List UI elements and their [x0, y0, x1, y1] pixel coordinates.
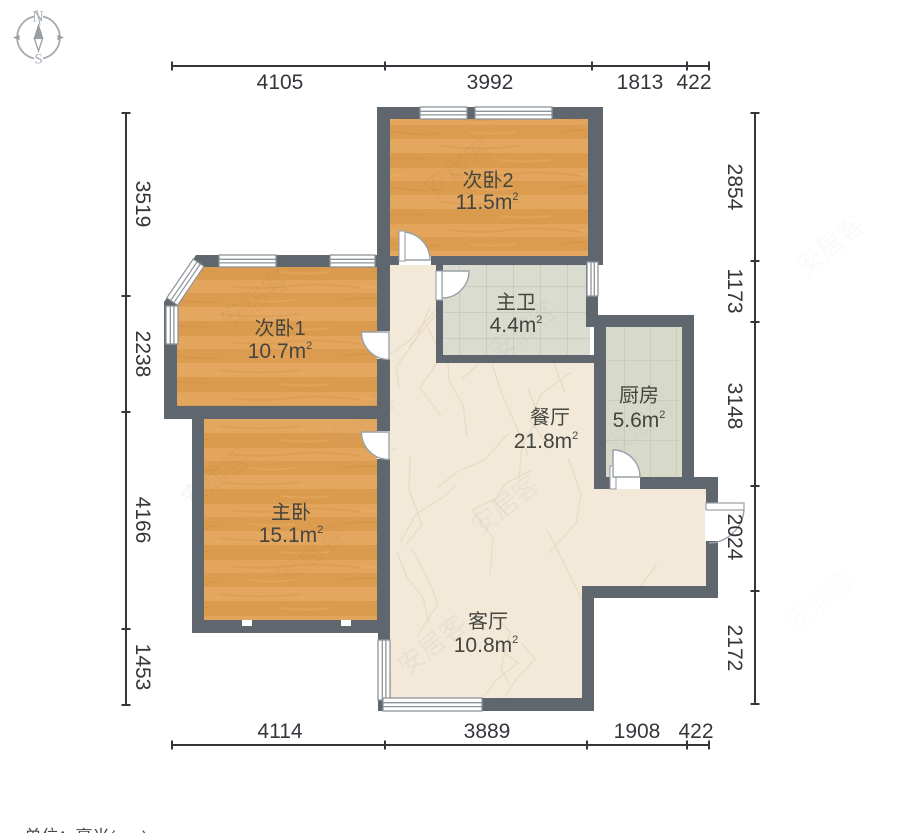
- svg-text:4114: 4114: [257, 720, 302, 743]
- svg-text:3519: 3519: [131, 181, 154, 228]
- svg-text:N: N: [32, 9, 44, 26]
- svg-text:2238: 2238: [131, 331, 154, 378]
- svg-text:3889: 3889: [464, 720, 511, 743]
- svg-text:2: 2: [502, 170, 513, 192]
- svg-text:15.1m2: 15.1m2: [259, 524, 324, 547]
- svg-text:422: 422: [678, 720, 713, 743]
- svg-text:11.5m2: 11.5m2: [456, 191, 519, 214]
- svg-text:21.8m2: 21.8m2: [514, 430, 579, 453]
- svg-text:2172: 2172: [723, 625, 746, 672]
- svg-text:5.6m2: 5.6m2: [613, 409, 666, 432]
- svg-text:4.4m2: 4.4m2: [490, 314, 543, 337]
- svg-text:1173: 1173: [723, 268, 746, 313]
- svg-text:10.8m2: 10.8m2: [454, 634, 519, 657]
- svg-text:4166: 4166: [131, 497, 154, 544]
- svg-text:1: 1: [294, 318, 305, 340]
- svg-text:4105: 4105: [257, 71, 304, 94]
- svg-text:3992: 3992: [467, 71, 514, 94]
- svg-text:1908: 1908: [614, 720, 661, 743]
- svg-text:422: 422: [676, 71, 711, 94]
- svg-text:2024: 2024: [723, 514, 746, 561]
- svg-text:2854: 2854: [723, 164, 746, 211]
- svg-text:S: S: [34, 52, 42, 68]
- svg-text:1813: 1813: [617, 71, 664, 94]
- svg-text:10.7m2: 10.7m2: [248, 340, 313, 363]
- svg-text:3148: 3148: [723, 383, 746, 430]
- svg-text:1453: 1453: [131, 644, 154, 691]
- svg-text:(mm): (mm): [110, 829, 147, 833]
